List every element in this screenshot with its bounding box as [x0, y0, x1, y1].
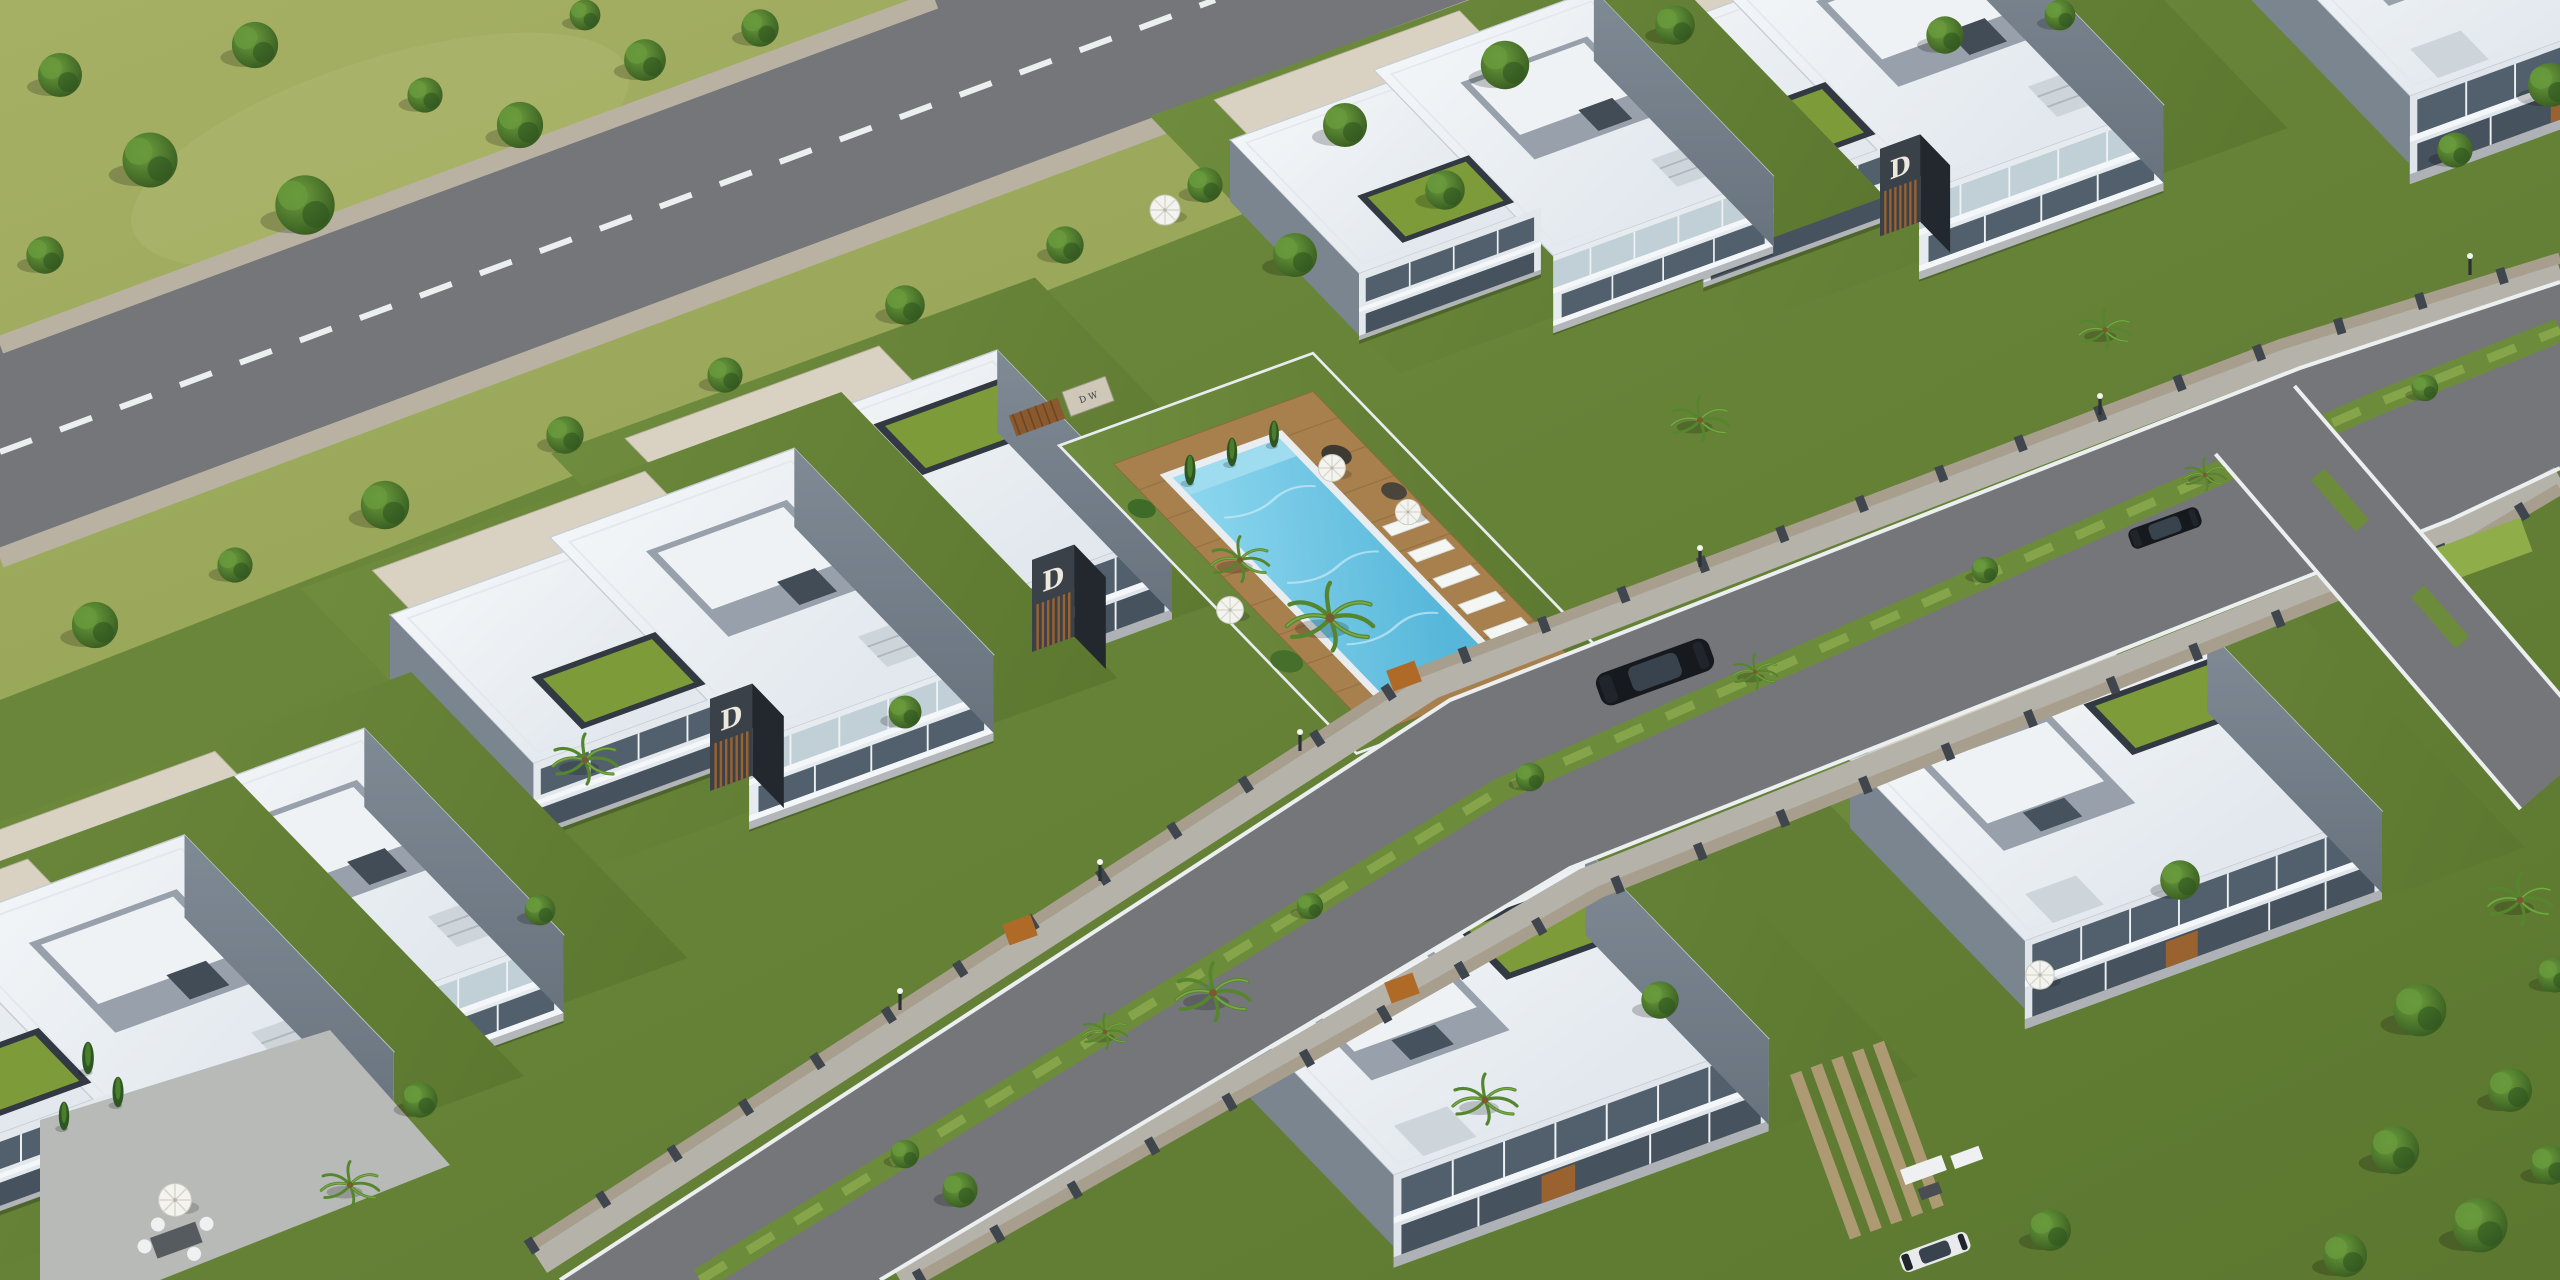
render-canvas: D	[0, 0, 2560, 1280]
aerial-estate-render: D	[0, 0, 2560, 1280]
